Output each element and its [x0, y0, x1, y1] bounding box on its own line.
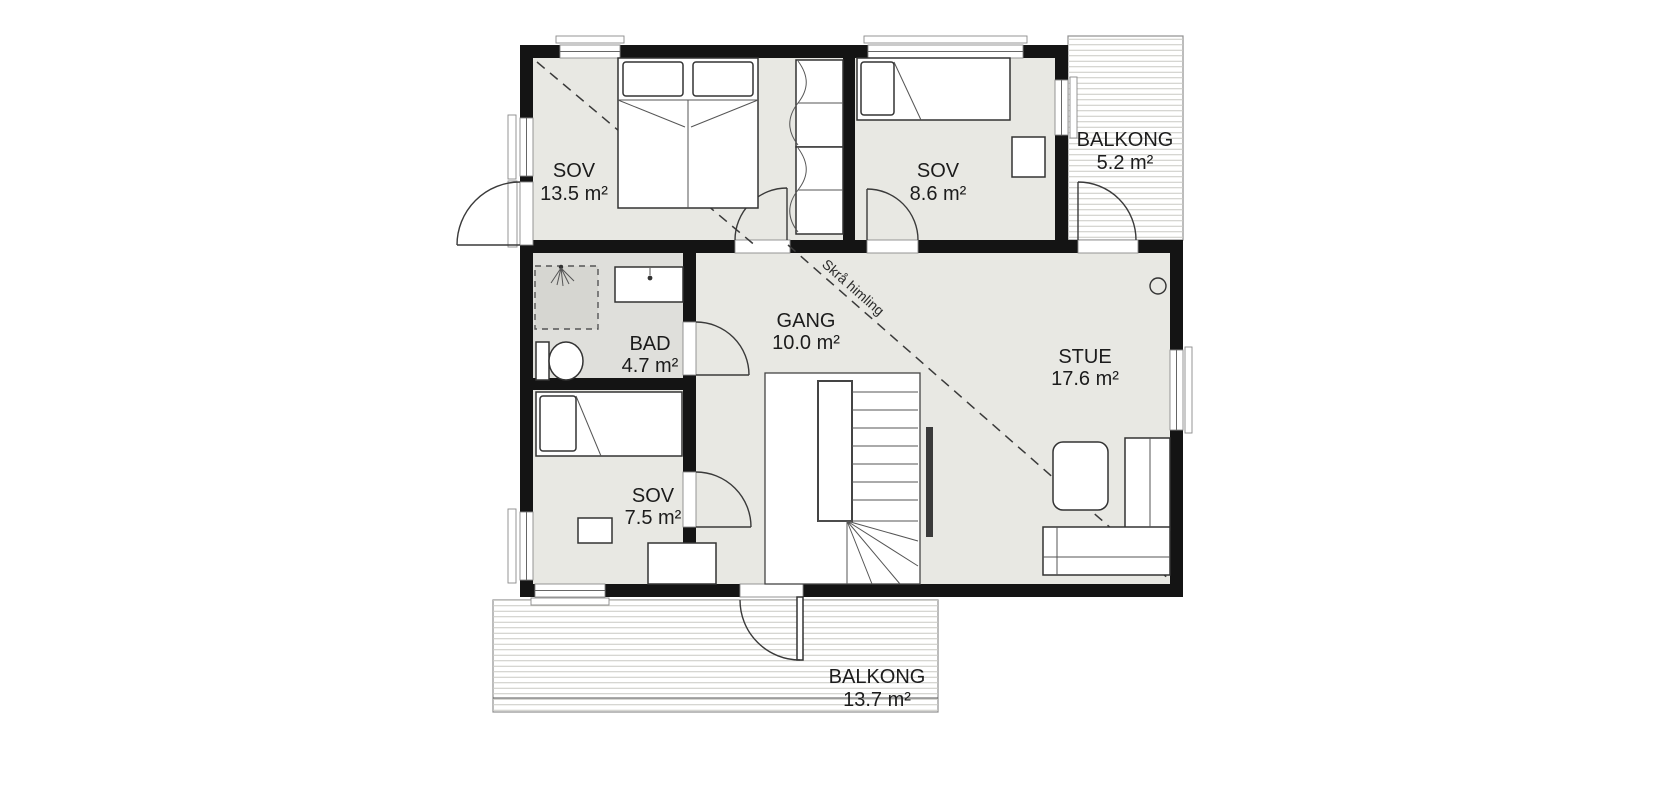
window-sill — [508, 115, 516, 179]
armchair — [1053, 442, 1108, 510]
opening-entry — [520, 182, 533, 245]
room-area-sov3: 7.5 m² — [625, 507, 682, 529]
dresser-sov3 — [648, 543, 716, 584]
single-bed-sov3 — [536, 392, 682, 456]
room-area-balkong-bottom: 13.7 m² — [843, 689, 911, 711]
room-area-sov2: 8.6 m² — [910, 183, 967, 205]
room-label-stue: STUE — [1058, 346, 1111, 368]
room-label-sov2: SOV — [917, 160, 960, 182]
double-bed — [618, 58, 758, 208]
room-area-stue: 17.6 m² — [1051, 368, 1119, 390]
stair-handrail — [926, 427, 933, 537]
wardrobe — [790, 60, 843, 234]
room-area-bad: 4.7 m² — [622, 355, 679, 377]
room-label-balkong-bottom: BALKONG — [829, 666, 926, 688]
opening-sov2 — [867, 240, 918, 253]
toilet — [536, 342, 583, 380]
wall-between-bedrooms — [843, 58, 855, 240]
floor-plan-page: SOV 13.5 m² SOV 8.6 m² BALKONG 5.2 m² BA… — [0, 0, 1670, 800]
room-area-gang: 10.0 m² — [772, 332, 840, 354]
nightstand-sov2 — [1012, 137, 1045, 177]
stairs — [765, 373, 933, 584]
opening-sov3 — [683, 472, 696, 527]
single-bed-sov2 — [857, 58, 1010, 120]
room-label-balkong-top: BALKONG — [1077, 129, 1174, 151]
wall-hall-left — [683, 253, 696, 584]
window-sill — [508, 509, 516, 583]
room-label-bad: BAD — [629, 333, 670, 355]
room-label-sov1: SOV — [553, 160, 596, 182]
stair-spine — [818, 381, 852, 521]
shower-area — [535, 266, 598, 329]
opening-sov1 — [735, 240, 790, 253]
floor-plan-drawing: SOV 13.5 m² SOV 8.6 m² BALKONG 5.2 m² BA… — [0, 0, 1670, 800]
room-label-gang: GANG — [777, 310, 836, 332]
entry-outer-frame — [508, 181, 517, 247]
nightstand-sov3 — [578, 518, 612, 543]
room-area-balkong-top: 5.2 m² — [1097, 152, 1154, 174]
opening-bad — [683, 322, 696, 375]
wall-bottom — [520, 584, 1183, 597]
opening-balcony-bottom — [740, 584, 803, 597]
wall-bedroom2-balcony — [1055, 45, 1068, 253]
wall-bath-bedroom3 — [533, 378, 683, 390]
sink-vanity — [615, 267, 683, 302]
window-sill — [1185, 347, 1192, 433]
room-area-sov1: 13.5 m² — [540, 183, 608, 205]
window-sill — [864, 36, 1027, 43]
window-sill — [556, 36, 624, 43]
room-label-sov3: SOV — [632, 485, 675, 507]
opening-balcony-top — [1078, 240, 1138, 253]
window-sill — [531, 598, 609, 605]
